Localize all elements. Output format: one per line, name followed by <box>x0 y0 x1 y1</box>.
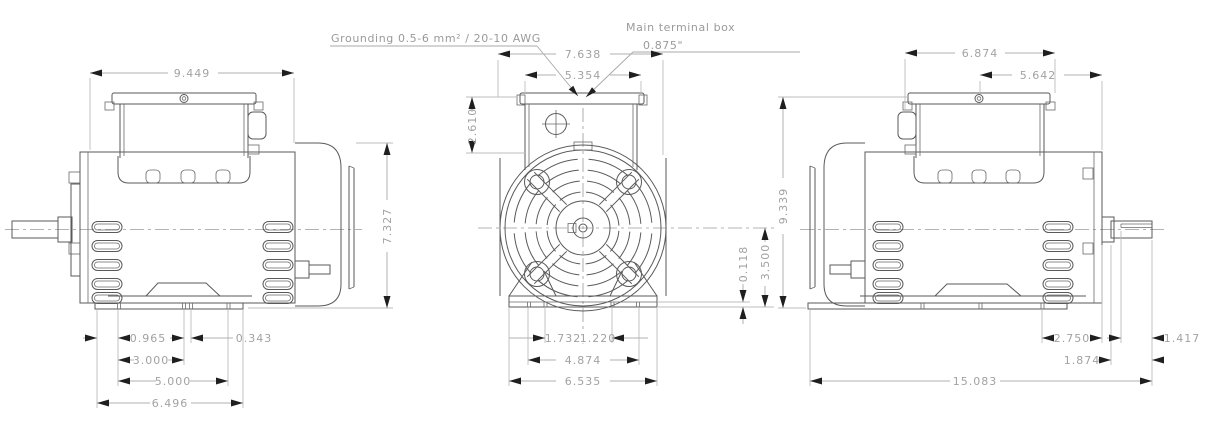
dim-front-lid-width: 5.354 <box>565 69 602 82</box>
left-terminal-box <box>105 93 266 183</box>
dim-left-mount-span-a: 3.000 <box>133 354 170 367</box>
dim-right-key-length: 1.417 <box>1164 332 1201 345</box>
dim-front-pad-thickness: 0.118 <box>737 246 750 283</box>
right-grounding-lug <box>851 261 865 278</box>
right-terminal-box <box>898 93 1055 183</box>
grounding-label: Grounding 0.5-6 mm² / 20-10 AWG <box>331 32 541 45</box>
dim-front-foot-right: 1.220 <box>580 332 617 345</box>
left-dimensions: 9.449 7.327 0.965 0.343 <box>83 67 394 410</box>
dim-right-box-to-face: 5.642 <box>1020 69 1057 82</box>
front-centerlines <box>478 108 774 330</box>
view-right-side: 6.874 5.642 9.339 2.750 <box>777 47 1200 388</box>
terminal-box-hole-label: 0.875" <box>643 39 683 52</box>
right-motor-body <box>865 152 1102 304</box>
front-dimensions: 7.638 5.354 2.610 1.732 <box>466 48 772 388</box>
dim-right-rear-overhang: 2.750 <box>1054 332 1091 345</box>
leader-arrow <box>569 86 578 96</box>
dim-left-vent-slot: 0.343 <box>236 332 273 345</box>
left-conduit-knockout <box>248 112 266 139</box>
left-grounding-lug <box>295 261 309 278</box>
dim-front-foot-left: 1.732 <box>545 332 582 345</box>
view-left-side: 9.449 7.327 0.965 0.343 <box>5 67 394 410</box>
dim-front-overall-width: 7.638 <box>565 48 602 61</box>
motor-dimensional-drawing: 9.449 7.327 0.965 0.343 <box>0 0 1214 444</box>
dim-right-overall-length: 15.083 <box>953 375 998 388</box>
dim-left-overall-length: 9.449 <box>174 67 211 80</box>
drawing-svg: 9.449 7.327 0.965 0.343 <box>0 0 1214 444</box>
dim-front-shaft-height: 3.500 <box>759 244 772 281</box>
dim-front-box-height: 2.610 <box>466 108 479 145</box>
left-fan-cover <box>295 143 354 306</box>
right-dimensions: 6.874 5.642 9.339 2.750 <box>777 47 1200 388</box>
dim-right-shaft-length: 1.874 <box>1064 354 1101 367</box>
dim-left-foot-hole-offset: 0.965 <box>130 332 167 345</box>
view-front: Grounding 0.5-6 mm² / 20-10 AWG Main ter… <box>330 21 800 388</box>
dim-right-box-width: 6.874 <box>962 47 999 60</box>
dim-right-overall-height: 9.339 <box>777 188 790 225</box>
dim-left-base-length: 6.496 <box>152 397 189 410</box>
dim-front-mount-span: 4.874 <box>565 354 602 367</box>
dim-left-cover-height: 7.327 <box>381 208 394 245</box>
right-conduit-knockout <box>898 112 916 139</box>
dim-left-mount-span-b: 5.000 <box>155 375 192 388</box>
right-fan-cover <box>810 143 865 306</box>
dim-front-base-width: 6.535 <box>565 375 602 388</box>
terminal-box-label: Main terminal box <box>626 21 735 34</box>
left-motor-body <box>80 152 295 304</box>
left-flange <box>69 172 80 276</box>
